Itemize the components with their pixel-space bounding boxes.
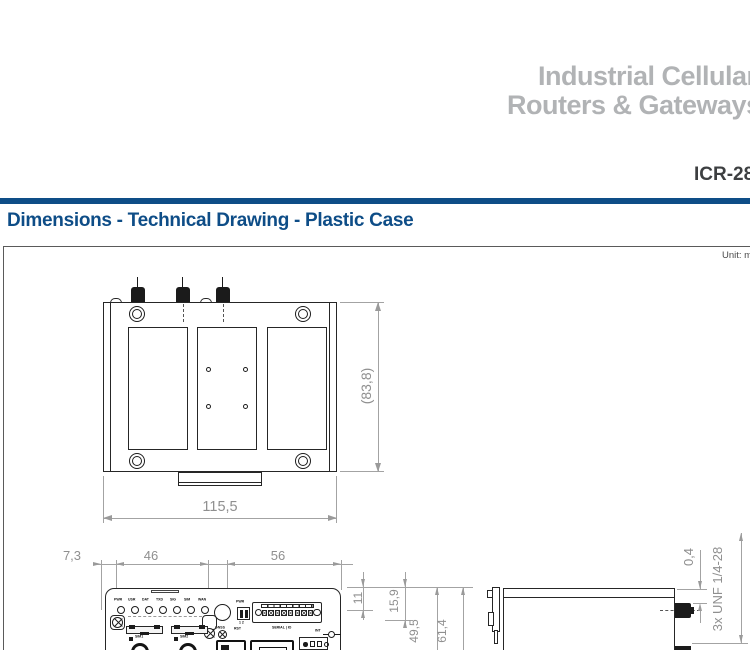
antenna-connector-icon [675, 603, 691, 618]
datasheet-page: Industrial Cellular Routers & Gateways I… [0, 0, 750, 650]
din-clip [494, 630, 498, 644]
extension-line [692, 643, 748, 644]
side-view: 0,4 3x UNF 1/4-28 [0, 0, 750, 650]
dimension-line [741, 533, 742, 643]
antenna-connector-icon [691, 607, 694, 614]
arrowhead [739, 533, 743, 541]
thread-note-label: 3x UNF 1/4-28 [710, 531, 724, 647]
arrowhead [698, 603, 702, 611]
arrowhead [698, 581, 702, 589]
extension-line [677, 589, 707, 590]
dim-0-4-label: 0,4 [681, 544, 693, 570]
din-clip [488, 612, 494, 626]
arrowhead [739, 635, 743, 643]
antenna-connector-icon [675, 646, 691, 650]
case-lid-line [504, 597, 674, 598]
dimension-line [700, 611, 701, 623]
